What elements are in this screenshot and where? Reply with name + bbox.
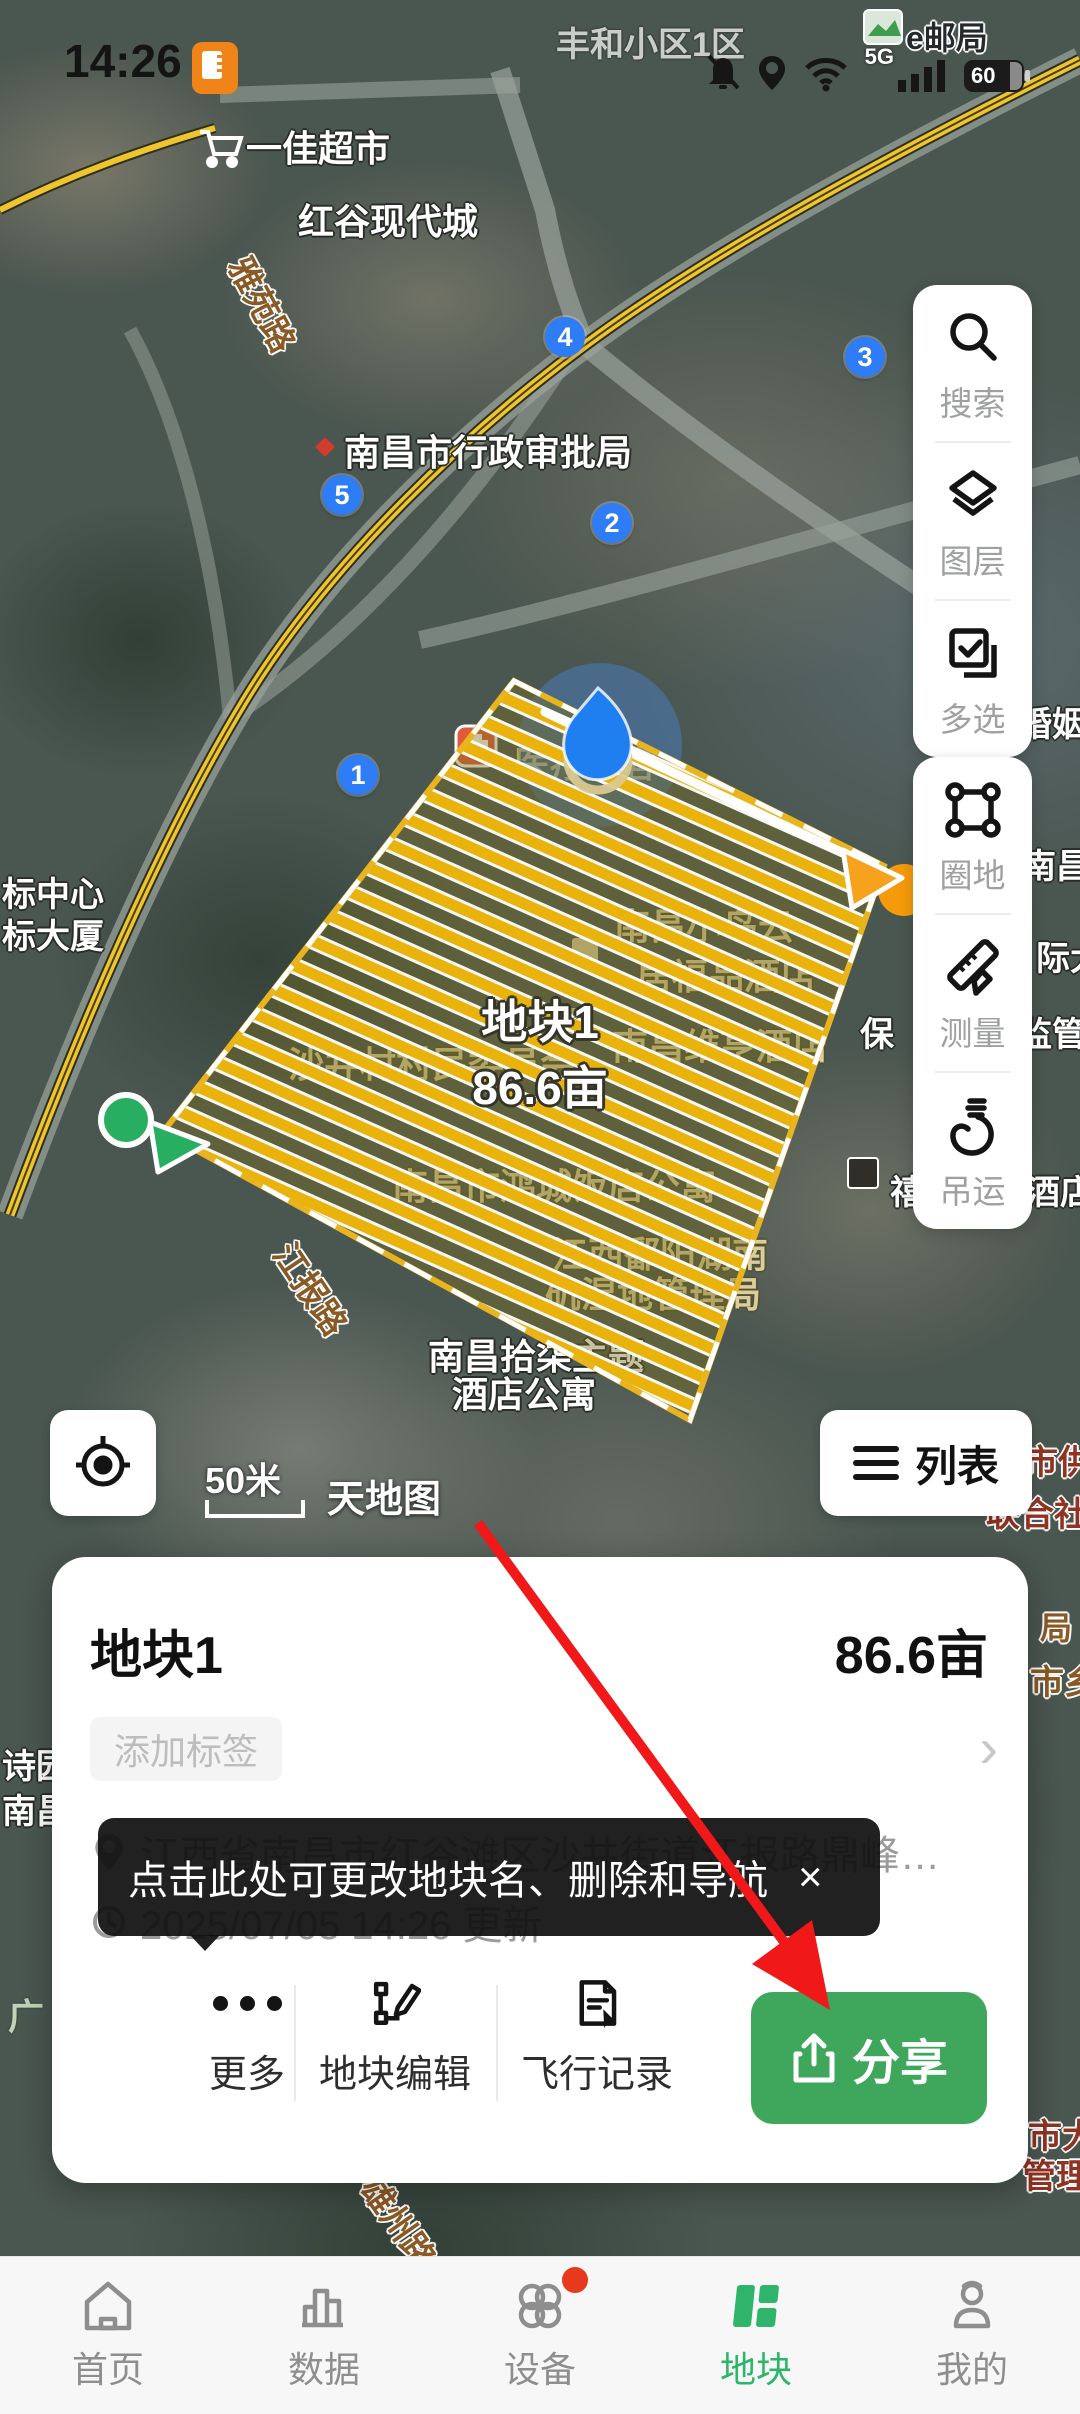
home-icon	[81, 2279, 135, 2333]
nav-plots[interactable]: 地块	[648, 2257, 864, 2414]
nav-plots-label: 地块	[720, 2341, 792, 2393]
nav-devices[interactable]: 设备	[432, 2257, 648, 2414]
annotation-arrow	[0, 0, 1080, 2414]
nav-profile-label: 我的	[936, 2341, 1008, 2393]
app-screen: 地块1 86.6亩 14:26 5G	[0, 0, 1080, 2414]
nav-home[interactable]: 首页	[0, 2257, 216, 2414]
nav-data[interactable]: 数据	[216, 2257, 432, 2414]
profile-icon	[945, 2279, 999, 2333]
nav-devices-label: 设备	[504, 2341, 576, 2393]
nav-home-label: 首页	[72, 2341, 144, 2393]
nav-profile[interactable]: 我的	[864, 2257, 1080, 2414]
data-icon	[297, 2279, 351, 2333]
devices-icon	[513, 2279, 567, 2333]
plots-icon	[726, 2279, 786, 2333]
notification-badge	[562, 2267, 588, 2293]
nav-data-label: 数据	[288, 2341, 360, 2393]
bottom-nav: 首页 数据 设备 地块	[0, 2256, 1080, 2414]
